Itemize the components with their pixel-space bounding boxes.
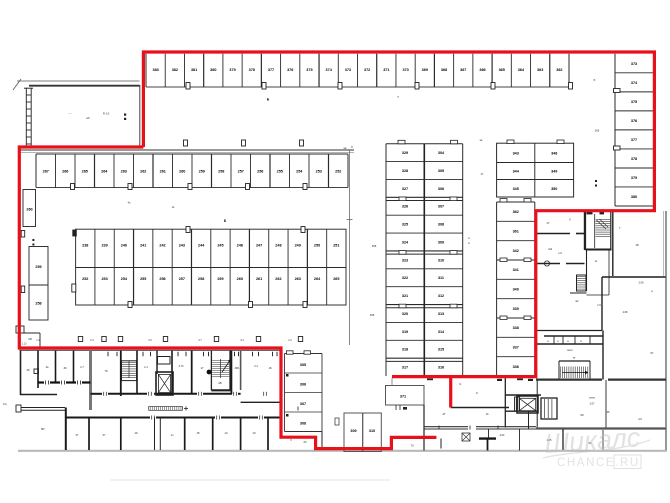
- svg-text:363: 363: [537, 68, 543, 72]
- svg-text:2.08: 2.08: [623, 311, 628, 314]
- svg-text:2.07: 2.07: [590, 403, 595, 406]
- svg-text:240: 240: [121, 244, 127, 248]
- svg-text:вент: вент: [567, 349, 573, 352]
- svg-text:258: 258: [35, 302, 41, 306]
- svg-text:381: 381: [191, 68, 197, 72]
- svg-text:325: 325: [402, 223, 408, 227]
- svg-text:259: 259: [217, 277, 223, 281]
- svg-text:R-19: R-19: [103, 112, 110, 116]
- svg-text:328: 328: [402, 169, 408, 173]
- svg-text:260: 260: [179, 170, 185, 174]
- svg-text:243: 243: [179, 244, 185, 248]
- svg-text:340: 340: [513, 288, 519, 292]
- svg-text:3.0: 3.0: [148, 339, 152, 342]
- svg-text:259: 259: [199, 170, 205, 174]
- svg-text:266: 266: [62, 170, 68, 174]
- svg-text:251: 251: [333, 244, 339, 248]
- svg-text:73: 73: [410, 444, 414, 448]
- svg-text:323: 323: [402, 258, 408, 262]
- svg-text:324: 324: [402, 240, 409, 244]
- svg-text:242: 242: [159, 244, 165, 248]
- svg-text:368: 368: [441, 68, 447, 72]
- svg-text:380: 380: [210, 68, 216, 72]
- svg-text:264: 264: [101, 170, 108, 174]
- svg-text:370: 370: [402, 68, 408, 72]
- svg-text:241: 241: [140, 244, 146, 248]
- svg-text:2.7: 2.7: [80, 366, 84, 369]
- svg-text:308: 308: [300, 422, 306, 426]
- svg-text:1.9: 1.9: [558, 252, 562, 255]
- svg-text:1.5: 1.5: [597, 304, 601, 307]
- svg-text:19: 19: [134, 431, 138, 435]
- svg-text:371: 371: [383, 68, 389, 72]
- svg-text:320: 320: [402, 312, 408, 316]
- svg-text:262: 262: [275, 277, 281, 281]
- svg-text:2.09: 2.09: [639, 282, 644, 285]
- svg-text:252: 252: [82, 277, 88, 281]
- svg-text:379: 379: [229, 68, 235, 72]
- svg-text:Юн: Юн: [3, 403, 8, 406]
- svg-text:364: 364: [518, 68, 525, 72]
- svg-text:375: 375: [306, 68, 312, 72]
- svg-text:244: 244: [198, 244, 205, 248]
- svg-text:349: 349: [551, 170, 557, 174]
- svg-text:361: 361: [513, 230, 519, 234]
- svg-text:377: 377: [631, 138, 637, 142]
- svg-text:67: 67: [650, 351, 654, 355]
- svg-text:259: 259: [35, 265, 41, 269]
- svg-text:374: 374: [326, 68, 333, 72]
- svg-text:338: 338: [513, 326, 519, 330]
- svg-text:305: 305: [438, 169, 444, 173]
- svg-text:327: 327: [402, 187, 408, 191]
- svg-text:тм2: тм2: [548, 248, 553, 251]
- svg-text:309: 309: [350, 429, 356, 433]
- svg-text:17: 17: [200, 366, 204, 370]
- svg-text:371: 371: [400, 395, 406, 399]
- svg-text:373: 373: [631, 62, 637, 66]
- svg-text:374: 374: [631, 81, 638, 85]
- svg-text:263: 263: [121, 170, 127, 174]
- svg-text:321: 321: [402, 294, 408, 298]
- svg-text:250: 250: [314, 244, 320, 248]
- svg-text:245: 245: [217, 244, 223, 248]
- svg-text:260: 260: [237, 277, 243, 281]
- svg-text:3.4: 3.4: [240, 339, 244, 342]
- svg-text:362: 362: [513, 210, 519, 214]
- svg-text:306: 306: [300, 383, 306, 387]
- svg-text:2.2: 2.2: [288, 339, 292, 342]
- svg-text:350: 350: [551, 187, 557, 191]
- svg-text:76: 76: [104, 369, 108, 373]
- svg-text:2.4: 2.4: [90, 339, 94, 342]
- svg-text:267: 267: [43, 170, 49, 174]
- svg-text:АВ1: АВ1: [235, 367, 240, 370]
- svg-text:—: —: [69, 112, 72, 116]
- svg-text:343: 343: [513, 152, 519, 156]
- svg-text:368: 368: [372, 244, 377, 248]
- svg-text:261: 261: [160, 170, 166, 174]
- svg-text:вб: вб: [86, 116, 90, 120]
- svg-text:258: 258: [218, 170, 224, 174]
- svg-text:315: 315: [438, 348, 444, 352]
- svg-text:256: 256: [257, 170, 263, 174]
- svg-text:348: 348: [551, 152, 557, 156]
- svg-text:260: 260: [26, 208, 32, 212]
- svg-text:305: 305: [300, 363, 306, 367]
- svg-text:16: 16: [268, 366, 272, 370]
- svg-text:342: 342: [513, 249, 519, 253]
- svg-text:2.73: 2.73: [179, 365, 184, 368]
- svg-text:АВ: АВ: [28, 337, 32, 341]
- svg-text:247: 247: [256, 244, 262, 248]
- svg-text:378: 378: [249, 68, 255, 72]
- svg-text:382: 382: [172, 68, 178, 72]
- svg-text:367: 367: [460, 68, 466, 72]
- svg-text:26: 26: [26, 368, 30, 372]
- svg-text:304: 304: [438, 151, 445, 155]
- svg-text:265: 265: [82, 170, 88, 174]
- svg-text:253: 253: [101, 277, 107, 281]
- svg-text:316: 316: [438, 366, 444, 370]
- svg-text:2.4: 2.4: [254, 365, 258, 368]
- svg-text:373: 373: [345, 68, 351, 72]
- svg-text:376: 376: [631, 119, 637, 123]
- svg-text:265: 265: [333, 277, 339, 281]
- svg-text:1.13: 1.13: [22, 343, 27, 346]
- svg-text:380: 380: [631, 195, 637, 199]
- svg-text:262: 262: [140, 170, 146, 174]
- svg-text:255: 255: [277, 170, 283, 174]
- svg-text:312: 312: [438, 294, 444, 298]
- svg-text:311: 311: [438, 276, 444, 280]
- svg-text:238: 238: [82, 244, 88, 248]
- svg-text:69: 69: [580, 413, 584, 417]
- svg-text:307: 307: [438, 205, 444, 209]
- svg-text:255: 255: [140, 277, 146, 281]
- svg-text:365: 365: [499, 68, 505, 72]
- svg-text:30: 30: [63, 366, 67, 370]
- svg-text:314: 314: [438, 330, 445, 334]
- svg-text:372: 372: [364, 68, 370, 72]
- svg-text:377: 377: [268, 68, 274, 72]
- svg-text:254: 254: [296, 170, 303, 174]
- svg-text:4.6: 4.6: [638, 418, 642, 421]
- svg-text:18: 18: [635, 243, 639, 247]
- svg-text:336: 336: [513, 365, 519, 369]
- svg-text:2.1: 2.1: [144, 366, 148, 369]
- svg-text:345: 345: [513, 187, 519, 191]
- svg-text:264: 264: [314, 277, 321, 281]
- svg-text:308: 308: [438, 223, 444, 227]
- svg-text:366: 366: [479, 68, 485, 72]
- svg-text:257: 257: [238, 170, 244, 174]
- svg-text:365: 365: [595, 129, 600, 133]
- svg-text:263: 263: [295, 277, 301, 281]
- svg-text:378: 378: [631, 157, 637, 161]
- svg-text:376: 376: [287, 68, 293, 72]
- svg-text:310: 310: [438, 258, 444, 262]
- svg-text:318: 318: [402, 348, 408, 352]
- svg-text:14: 14: [224, 431, 228, 435]
- svg-text:253: 253: [316, 170, 322, 174]
- svg-text:248: 248: [275, 244, 281, 248]
- svg-text:383: 383: [152, 68, 158, 72]
- svg-text:261: 261: [256, 277, 262, 281]
- svg-text:17: 17: [546, 221, 550, 225]
- svg-text:337: 337: [513, 346, 519, 350]
- svg-text:АБ: АБ: [218, 382, 222, 385]
- svg-text:2.04: 2.04: [500, 434, 505, 437]
- svg-text:375: 375: [631, 100, 637, 104]
- svg-text:362: 362: [556, 68, 562, 72]
- svg-text:322: 322: [402, 276, 408, 280]
- svg-text:13: 13: [252, 431, 256, 435]
- svg-text:306: 306: [438, 187, 444, 191]
- svg-text:254: 254: [121, 277, 128, 281]
- svg-text:CHANCE.RU: CHANCE.RU: [557, 457, 640, 469]
- svg-text:313: 313: [438, 312, 444, 316]
- svg-text:252: 252: [335, 170, 341, 174]
- svg-text:329: 329: [402, 151, 408, 155]
- svg-text:339: 339: [513, 307, 519, 311]
- svg-text:326: 326: [402, 205, 408, 209]
- svg-text:257: 257: [179, 277, 185, 281]
- svg-text:309: 309: [438, 240, 444, 244]
- svg-text:ВУ: ВУ: [41, 427, 45, 431]
- svg-text:319: 319: [402, 330, 408, 334]
- svg-text:344: 344: [513, 170, 520, 174]
- svg-text:15: 15: [196, 431, 200, 435]
- svg-text:369: 369: [422, 68, 428, 72]
- svg-text:307: 307: [300, 402, 306, 406]
- svg-text:246: 246: [237, 244, 243, 248]
- svg-text:317: 317: [402, 366, 408, 370]
- svg-text:341: 341: [513, 268, 519, 272]
- svg-text:4.7: 4.7: [198, 339, 202, 342]
- svg-text:379: 379: [631, 176, 637, 180]
- svg-text:368: 368: [370, 313, 375, 317]
- svg-text:256: 256: [159, 277, 165, 281]
- svg-text:НТП: НТП: [589, 397, 594, 400]
- svg-text:239: 239: [101, 244, 107, 248]
- svg-text:АТ: АТ: [443, 413, 446, 416]
- svg-text:258: 258: [198, 277, 204, 281]
- svg-text:310: 310: [369, 429, 375, 433]
- svg-text:1.2: 1.2: [36, 339, 40, 342]
- svg-text:249: 249: [295, 244, 301, 248]
